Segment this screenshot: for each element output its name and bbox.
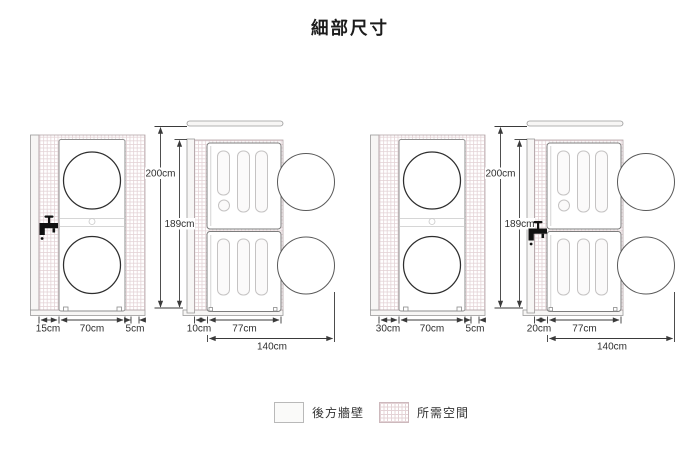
dim-side-gap: 15cm bbox=[36, 324, 60, 335]
dim-right-gap: 5cm bbox=[466, 324, 485, 335]
dim-right-gap: 5cm bbox=[126, 324, 145, 335]
rear-wall-label: 後方牆壁 bbox=[312, 404, 364, 421]
front-view bbox=[371, 135, 486, 324]
legend: 後方牆壁 所需空間 bbox=[274, 402, 484, 423]
dim-total-depth: 140cm bbox=[257, 342, 287, 353]
dim-machine-height: 189cm bbox=[164, 219, 194, 230]
dim-machine-depth: 77cm bbox=[232, 324, 256, 335]
dim-machine-width: 70cm bbox=[80, 324, 104, 335]
dimension-sheet: 細部尺寸 bbox=[0, 0, 700, 465]
dim-total-height: 200cm bbox=[145, 169, 175, 180]
dim-total-height: 200cm bbox=[485, 169, 515, 180]
dim-side-gap: 30cm bbox=[376, 324, 400, 335]
dim-rear-gap: 20cm bbox=[527, 324, 551, 335]
dimensions-diagram: 15cm 70cm 5cm 200cm 189cm 10cm 77cm 140c… bbox=[0, 0, 700, 465]
diagram-left-config: 15cm 70cm 5cm 200cm 189cm 10cm 77cm 140c… bbox=[31, 121, 335, 353]
dim-machine-height: 189cm bbox=[504, 219, 534, 230]
side-view bbox=[485, 121, 675, 342]
side-view bbox=[145, 121, 335, 342]
dim-machine-width: 70cm bbox=[420, 324, 444, 335]
required-space-label: 所需空間 bbox=[417, 404, 469, 421]
diagram-right-config: 30cm 70cm 5cm 200cm 189cm 20cm 77cm 140c… bbox=[371, 121, 675, 353]
dim-machine-depth: 77cm bbox=[572, 324, 596, 335]
rear-wall-swatch bbox=[274, 402, 304, 423]
required-space-swatch bbox=[379, 402, 409, 423]
dim-rear-gap: 10cm bbox=[187, 324, 211, 335]
dim-total-depth: 140cm bbox=[597, 342, 627, 353]
front-view bbox=[31, 135, 146, 324]
